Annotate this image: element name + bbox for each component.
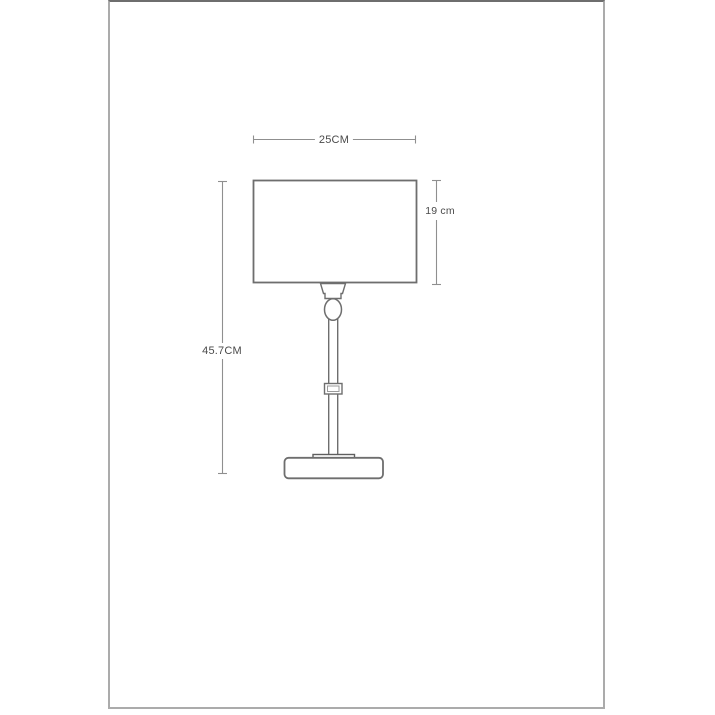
lamp-dimension-drawing [0,0,715,715]
base [285,458,384,479]
lamp-outline [254,181,417,479]
lamp-shade [254,181,417,283]
shade-height-dimension-label: 19 cm [423,202,457,220]
finial [325,299,342,321]
total-height-dimension-label: 45.7CM [200,343,244,359]
width-dimension-label: 25CM [315,133,353,147]
socket-cup [321,284,346,299]
